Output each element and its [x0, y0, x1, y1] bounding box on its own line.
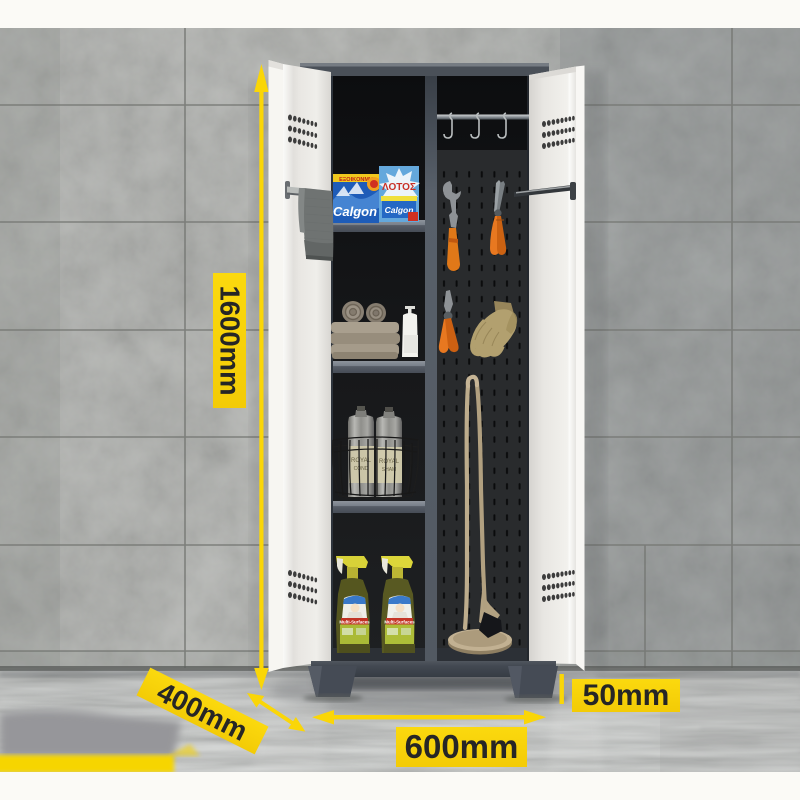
- svg-text:1600mm: 1600mm: [215, 285, 246, 395]
- svg-text:50mm: 50mm: [583, 679, 670, 712]
- svg-text:600mm: 600mm: [405, 728, 519, 765]
- svg-text:ROYAL: ROYAL: [379, 459, 400, 465]
- svg-text:Calgon: Calgon: [333, 204, 377, 219]
- svg-text:SHAM: SHAM: [382, 467, 396, 473]
- svg-text:COND: COND: [354, 466, 369, 472]
- svg-text:Multi-Surfaces: Multi-Surfaces: [384, 620, 415, 625]
- svg-text:ΛΟΤΟΣ: ΛΟΤΟΣ: [382, 182, 416, 193]
- svg-text:Multi-Surfaces: Multi-Surfaces: [339, 620, 370, 625]
